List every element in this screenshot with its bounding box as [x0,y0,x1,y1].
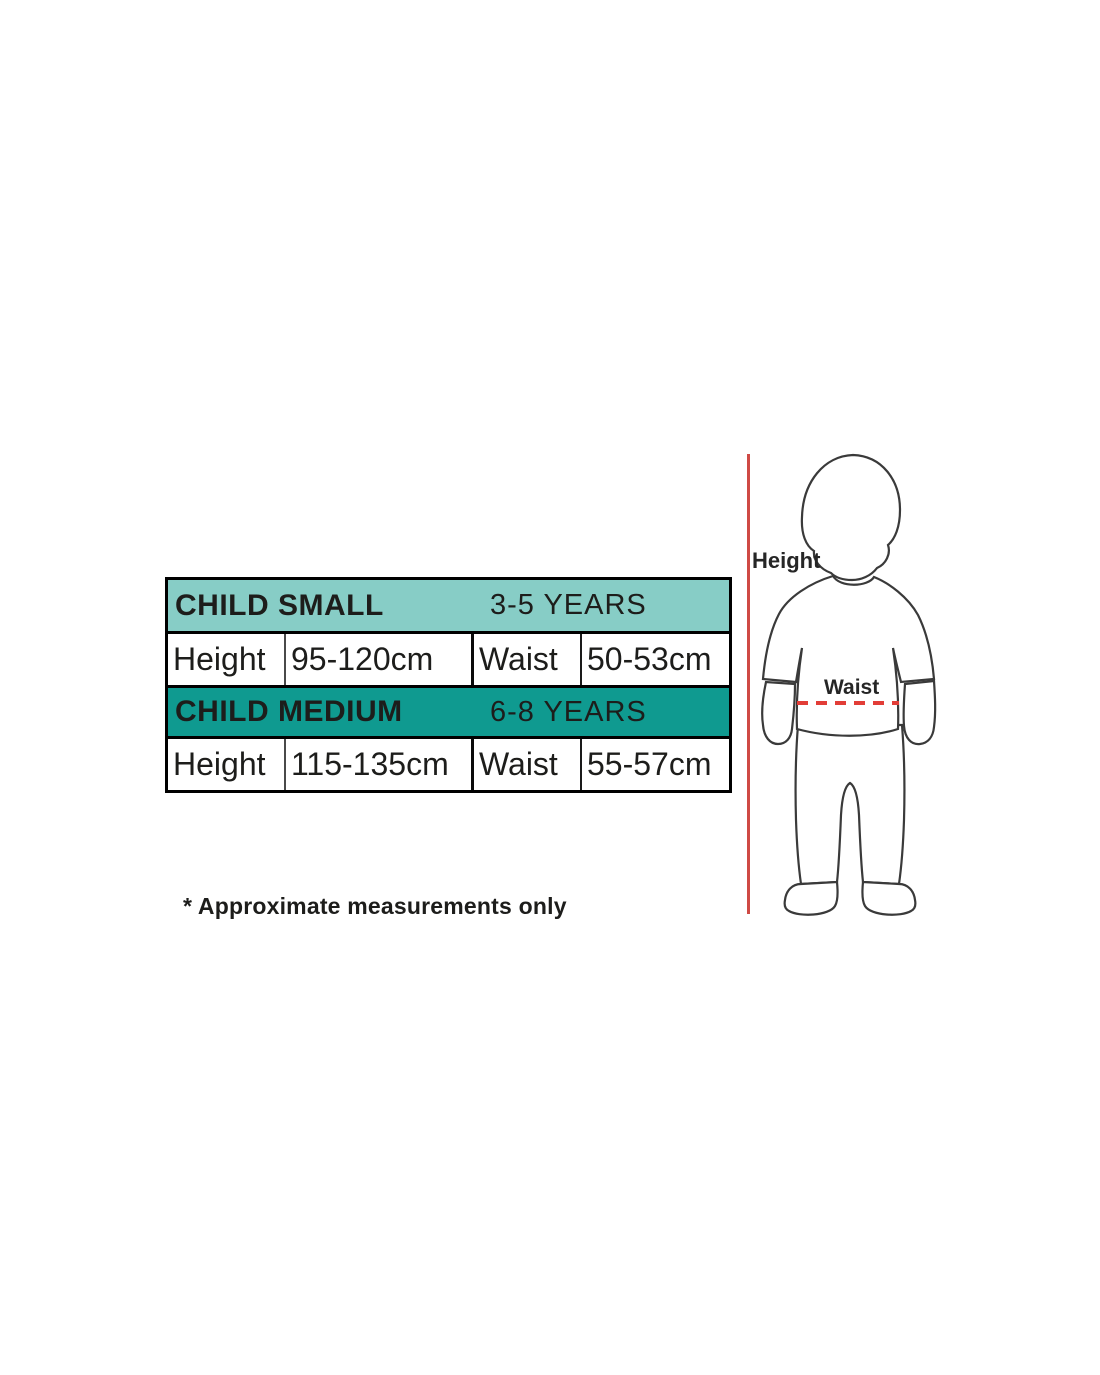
child-measurement-diagram: Waist Height [740,440,1100,920]
size-name: CHILD SMALL [175,589,384,623]
table-row-child-medium: Height 115-135cm Waist 55-57cm [168,736,729,790]
waist-value: 55-57cm [582,739,729,790]
waist-label: Waist [474,739,582,790]
left-shoe-outline [785,882,838,915]
height-label: Height [168,739,286,790]
right-hand-outline [904,681,936,744]
waist-value: 50-53cm [582,634,729,685]
child-outline-illustration: Waist Height [740,440,1100,920]
size-header-child-small: CHILD SMALL 3-5 YEARS [168,580,729,631]
height-label: Height [168,634,286,685]
size-chart-page: CHILD SMALL 3-5 YEARS Height 95-120cm Wa… [0,0,1100,1375]
height-value: 95-120cm [286,634,474,685]
height-value: 115-135cm [286,739,474,790]
size-table: CHILD SMALL 3-5 YEARS Height 95-120cm Wa… [165,577,732,793]
waist-indicator-label: Waist [824,676,879,699]
approximate-measurements-note: * Approximate measurements only [183,893,567,920]
size-header-child-medium: CHILD MEDIUM 6-8 YEARS [168,685,729,736]
height-indicator-label: Height [752,548,821,573]
size-name: CHILD MEDIUM [175,695,403,729]
age-range: 3-5 YEARS [490,589,647,622]
left-hand-outline [762,682,795,744]
age-range: 6-8 YEARS [490,696,647,729]
pants-outline [796,725,905,884]
table-row-child-small: Height 95-120cm Waist 50-53cm [168,631,729,685]
right-shoe-outline [862,882,915,915]
waist-label: Waist [474,634,582,685]
